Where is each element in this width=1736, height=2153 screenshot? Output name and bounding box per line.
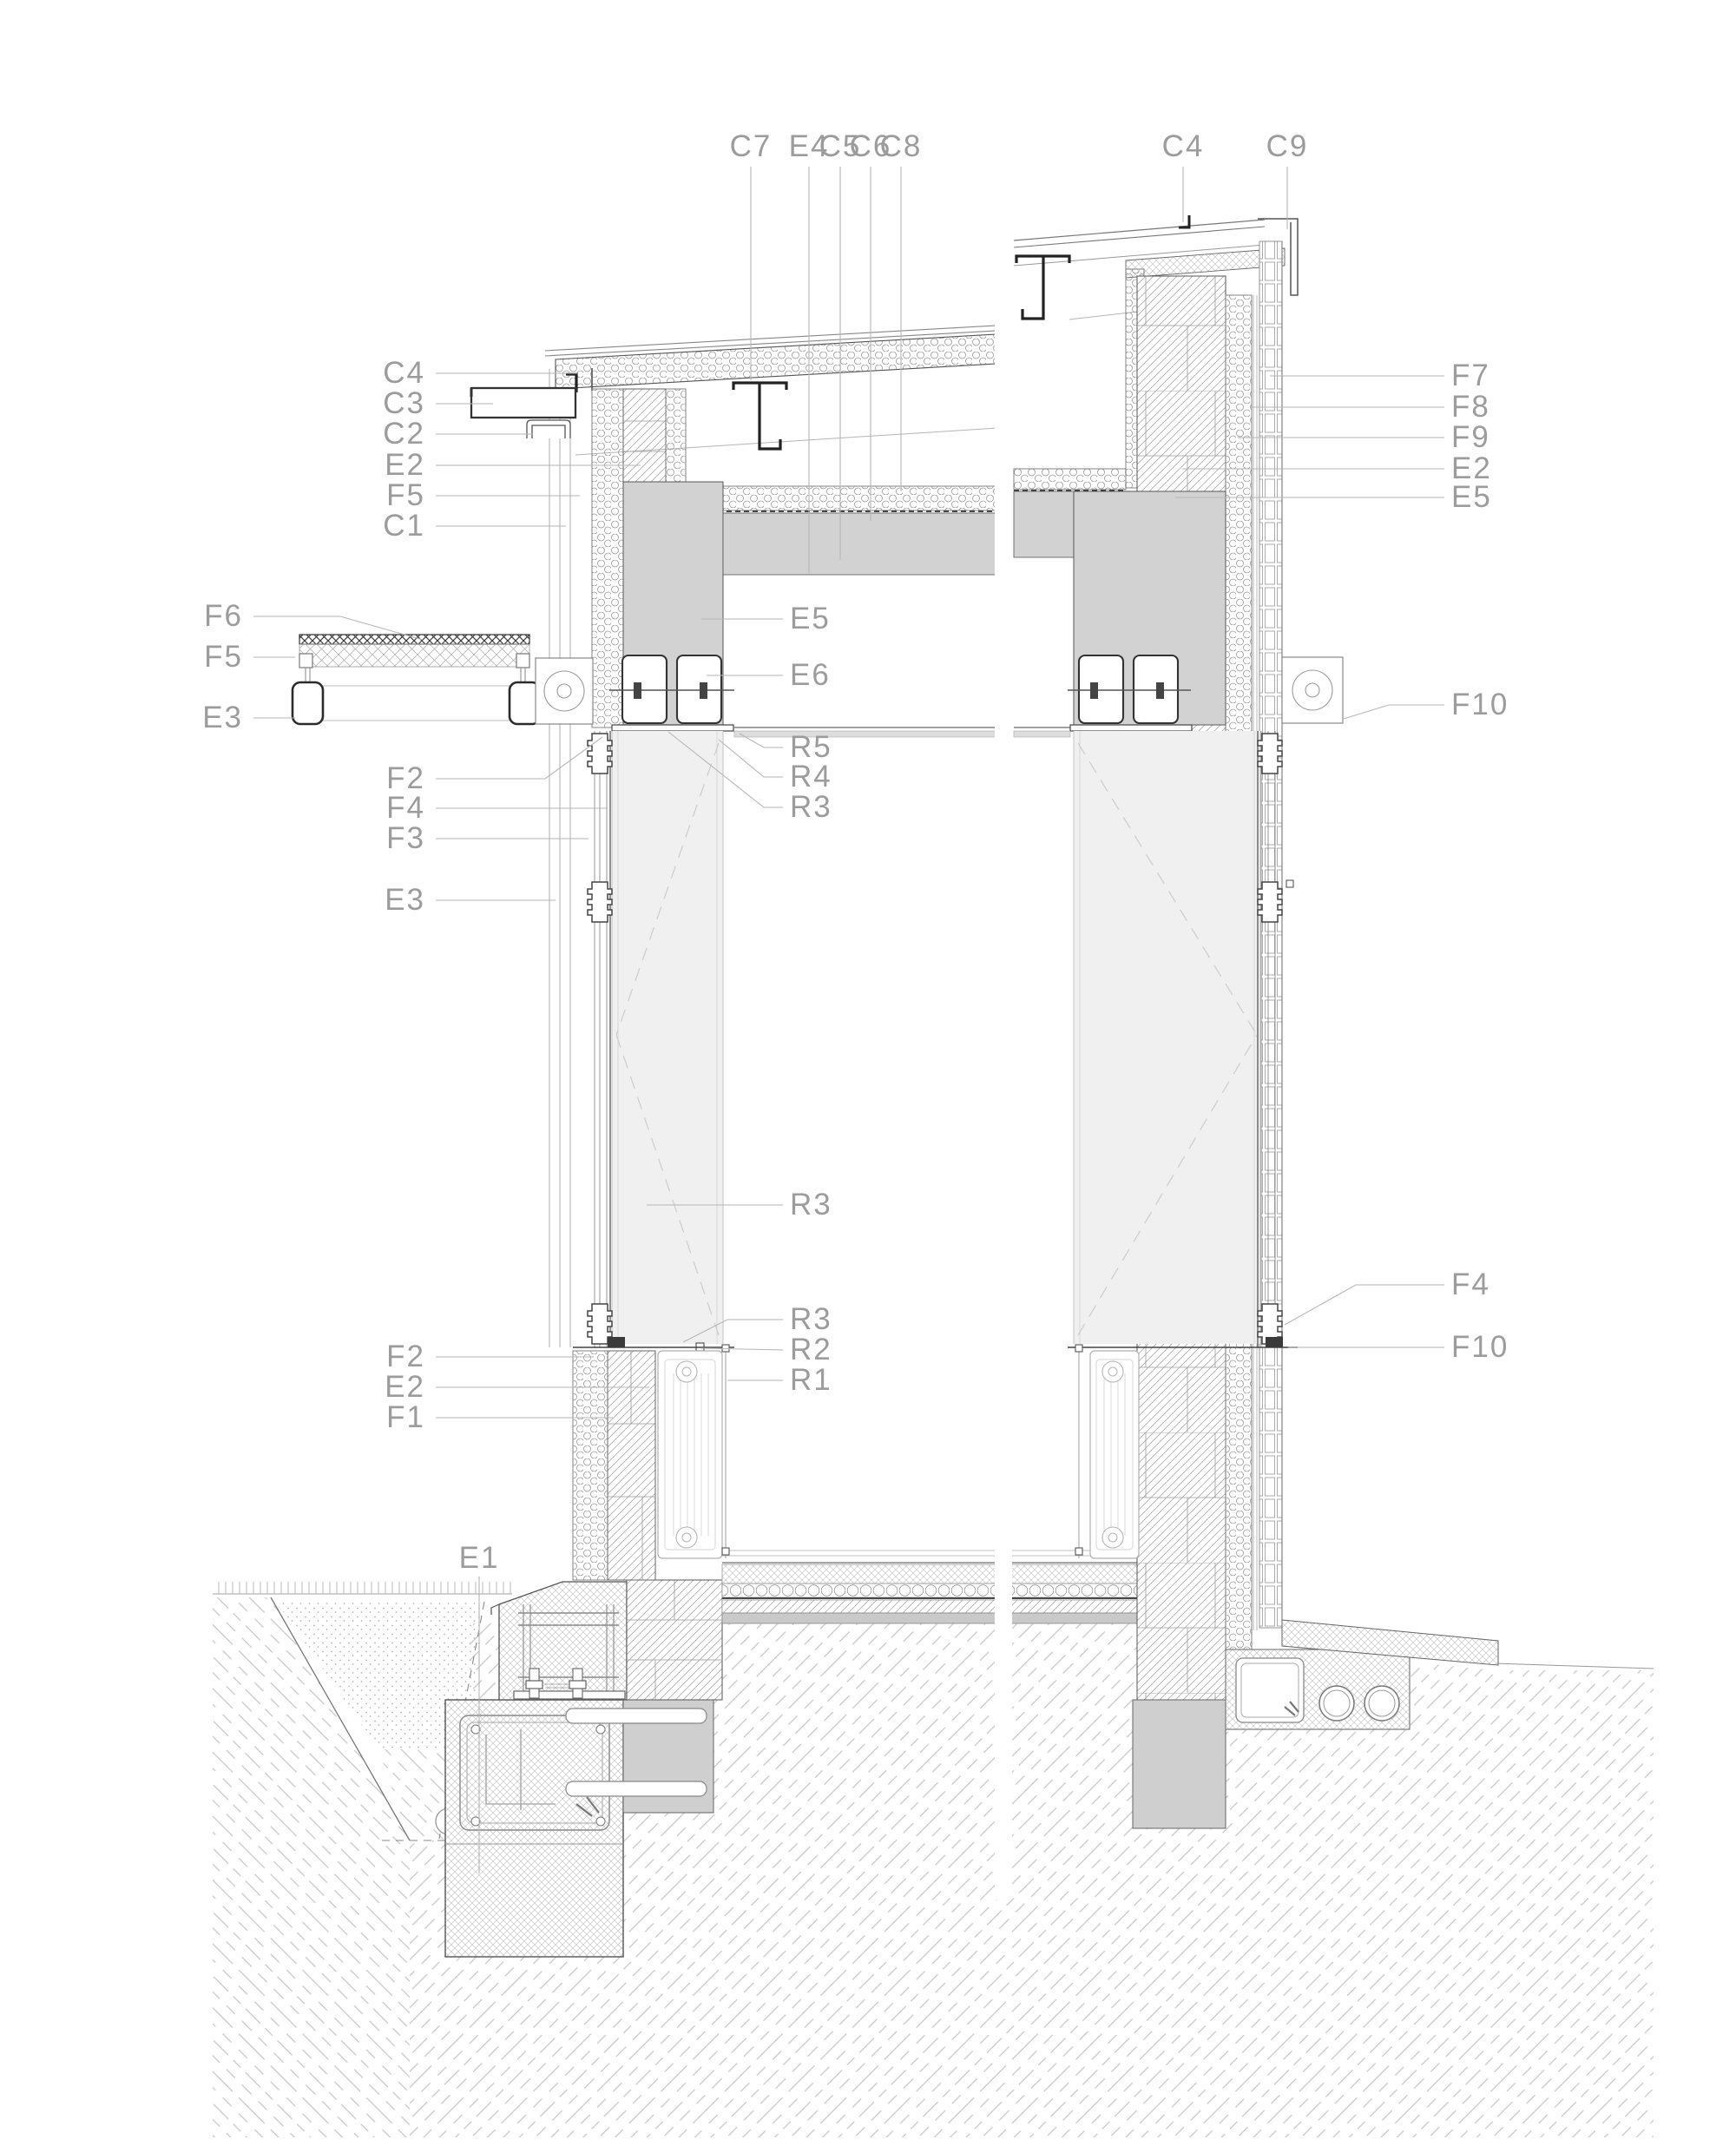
label-c1-12: C1 (383, 509, 425, 543)
roof-drain-bracket-right (1016, 256, 1069, 319)
label-f2-20: F2 (386, 1340, 425, 1373)
leader-line-r2-31 (701, 1348, 783, 1350)
canopy-panel (299, 644, 529, 667)
label-c2-9: C2 (383, 417, 425, 451)
frame-coupler-left-head (588, 734, 612, 774)
right-wall-module (1014, 215, 1343, 1702)
roof-insulation-left (556, 333, 1011, 389)
label-e1-23: E1 (459, 1541, 500, 1575)
label-f3-18: F3 (386, 821, 425, 855)
service-pipe (1364, 1686, 1399, 1721)
roof-drain-bracket (733, 383, 786, 449)
head-channel-right (1134, 655, 1178, 723)
frame-coupler-left-mid (588, 882, 612, 922)
spandrel-masonry-left (608, 1351, 655, 1580)
gutter (471, 388, 575, 418)
window-head-plate-right (1070, 725, 1192, 731)
wall-insulation-left (592, 389, 623, 728)
dowel-bar (566, 1781, 707, 1796)
ceiling-strip-right (1014, 731, 1070, 737)
roller-blind-box-right (1282, 657, 1343, 723)
concrete-slab-left (723, 513, 1011, 575)
concrete-pier-right (1133, 1700, 1226, 1828)
label-r3-29: R3 (790, 1188, 832, 1221)
construction-detail-sheet: C7E4C5C6C8C4C9C4C3C2E2F5C1F6F5E3F2F4F3E3… (0, 0, 1736, 2153)
label-e5-24: E5 (790, 602, 831, 635)
leader-line-f10-38 (1344, 705, 1444, 719)
label-f6-13: F6 (204, 599, 243, 633)
label-e3-19: E3 (385, 883, 425, 917)
label-r3-28: R3 (790, 790, 832, 824)
spandrel-insulation-left (573, 1351, 608, 1580)
leader-line-f4-39 (1285, 1285, 1444, 1325)
glazing-left (612, 731, 723, 1344)
floor-blinding (722, 1613, 1144, 1623)
plinth (499, 1582, 627, 1700)
sill-bracket-left (608, 1337, 625, 1347)
head-channel-right (1079, 655, 1123, 723)
label-f10-40: F10 (1451, 1330, 1509, 1364)
label-f5-14: F5 (204, 640, 243, 674)
floor-screed (722, 1564, 1144, 1583)
radiator-left (658, 1345, 729, 1558)
section-break-gap (995, 207, 1012, 1900)
label-f4-39: F4 (1451, 1267, 1490, 1301)
head-channel-left (677, 655, 721, 723)
glazing-fixing (1286, 880, 1293, 887)
label-f10-38: F10 (1451, 688, 1509, 721)
label-f8-34: F8 (1451, 390, 1490, 424)
canopy-grating (299, 635, 529, 644)
ground-surface-ticks (213, 1582, 512, 1594)
ceiling-strip-left (734, 731, 1011, 737)
label-f1-22: F1 (386, 1400, 425, 1434)
brick-cladding-right (1259, 241, 1282, 1628)
sill-bracket-right (1266, 1337, 1283, 1347)
service-pipe (1319, 1686, 1354, 1721)
inner-insulation-left (666, 389, 686, 486)
leader-line-f2-16 (436, 737, 602, 779)
label-f7-33: F7 (1451, 359, 1490, 392)
label-f4-17: F4 (386, 791, 425, 825)
window-left (588, 731, 723, 1351)
wall-masonry-left (623, 389, 666, 482)
cladding-lines (549, 369, 570, 1347)
label-r3-30: R3 (790, 1302, 832, 1336)
label-c9-6: C9 (1266, 129, 1309, 163)
label-r4-27: R4 (790, 760, 832, 793)
floor-buildup (722, 1544, 1144, 1623)
label-c8-4: C8 (880, 129, 923, 163)
canopy-steel-tube (293, 682, 323, 724)
gutter-channel (527, 420, 570, 438)
footing (445, 1700, 623, 1957)
canopy-edge-profile (516, 654, 529, 668)
head-channel-left (622, 655, 667, 723)
ceiling-insulation-right (1014, 469, 1126, 490)
canopy (293, 635, 540, 724)
window-head-plate-left (612, 725, 733, 731)
label-e5-37: E5 (1451, 480, 1492, 514)
window-right (1074, 731, 1293, 1347)
label-f5-11: F5 (386, 478, 425, 512)
label-c3-8: C3 (383, 386, 425, 420)
ground-and-excavation (213, 1582, 1654, 2137)
label-r2-31: R2 (790, 1333, 832, 1366)
glazing-right (1074, 731, 1260, 1344)
canopy-edge-profile (299, 654, 312, 668)
label-c4-5: C4 (1162, 129, 1205, 163)
label-e6-25: E6 (790, 658, 831, 692)
trench-rebar-box (1236, 1658, 1304, 1722)
frame-lines-left (595, 731, 607, 1347)
floor-slab (722, 1600, 1144, 1613)
wall-section-drawing: C7E4C5C6C8C4C9C4C3C2E2F5C1F6F5E3F2F4F3E3… (0, 0, 1736, 2153)
dowel-bar (566, 1709, 707, 1723)
label-e3-15: E3 (202, 701, 243, 734)
leader-line-r4-27 (719, 740, 783, 777)
label-e2-10: E2 (385, 448, 425, 482)
label-e2-21: E2 (385, 1370, 425, 1404)
floor-insulation (722, 1583, 1144, 1597)
radiator-right (1075, 1345, 1139, 1558)
label-r1-32: R1 (790, 1363, 832, 1397)
label-c4-7: C4 (383, 356, 425, 390)
label-f9-35: F9 (1451, 420, 1490, 454)
label-c7-0: C7 (730, 129, 773, 163)
left-wall-module (471, 325, 1011, 1580)
